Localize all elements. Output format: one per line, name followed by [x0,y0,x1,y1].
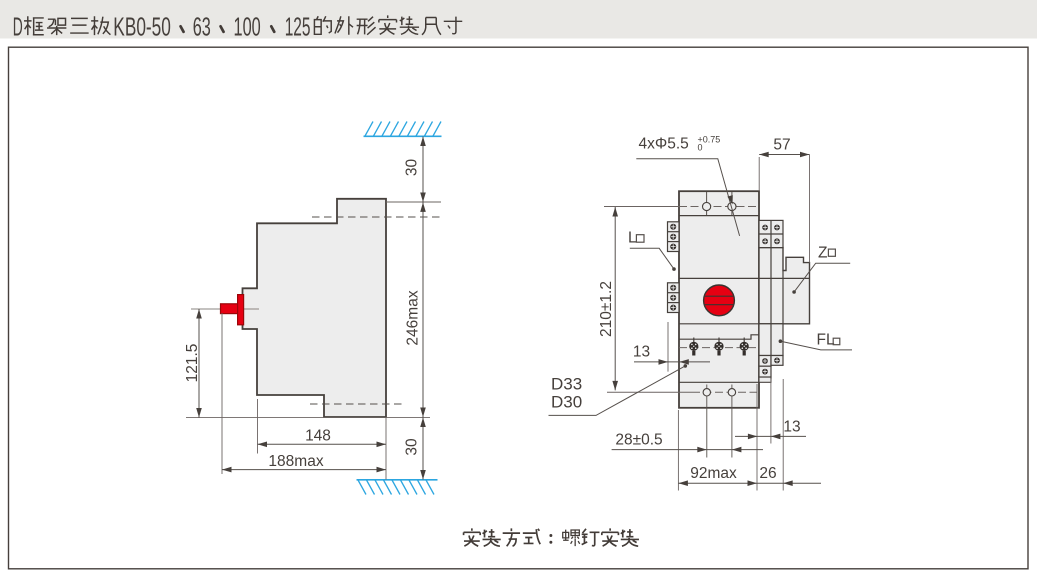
svg-text:D33: D33 [551,375,582,394]
svg-text:210±1.2: 210±1.2 [598,281,615,337]
svg-text:D: D [13,14,23,42]
svg-text:188max: 188max [268,453,323,470]
svg-text:13: 13 [783,419,800,436]
svg-text:D30: D30 [551,393,582,412]
svg-text:125: 125 [285,14,311,42]
svg-text:4xΦ5.5: 4xΦ5.5 [639,136,689,153]
svg-text:148: 148 [305,428,331,445]
svg-text:0: 0 [698,143,703,153]
svg-text:28±0.5: 28±0.5 [615,431,662,448]
svg-text:30: 30 [404,159,421,177]
svg-text:63: 63 [193,14,211,42]
svg-text:246max: 246max [405,290,422,345]
svg-text:13: 13 [633,344,650,361]
svg-text:26: 26 [759,465,776,482]
svg-text:L: L [628,229,637,246]
svg-text:92max: 92max [690,465,737,482]
svg-text:121.5: 121.5 [184,344,201,383]
svg-text:KB0-50: KB0-50 [113,14,171,42]
svg-text:FL: FL [817,332,835,349]
svg-text:100: 100 [234,14,261,42]
svg-text:57: 57 [773,137,790,154]
svg-text:30: 30 [404,438,421,456]
svg-text:Z: Z [818,244,827,261]
